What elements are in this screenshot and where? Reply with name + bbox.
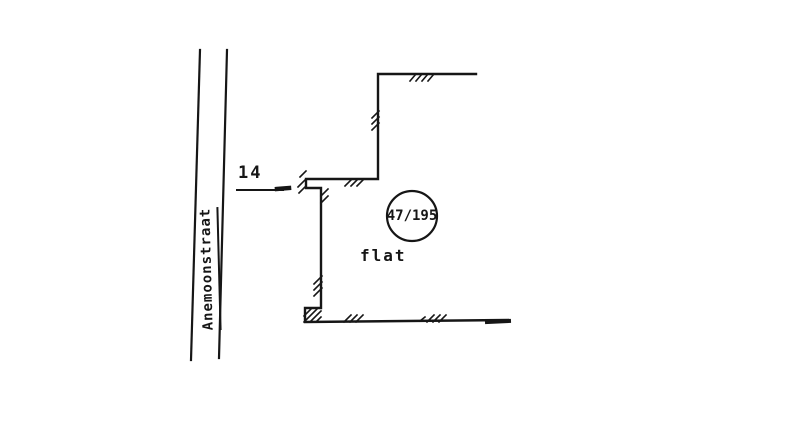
street-edge-line [191,50,200,360]
cadastral-sketch: Anemoonstraat 14 47/195 flat [0,0,800,423]
boundary-end-tick [487,321,509,322]
hatch-mark [310,311,321,322]
leader-end-tick [277,188,289,189]
street-name-label: Anemoonstraat [198,207,221,330]
parcel-number-label: 47/195 [387,209,438,223]
hatch-mark [298,180,305,187]
hatch-mark [300,171,306,177]
building-type-label: flat [360,248,407,264]
house-number-label: 14 [238,165,262,182]
hatch-mark [299,186,306,193]
building-outline [305,74,508,322]
